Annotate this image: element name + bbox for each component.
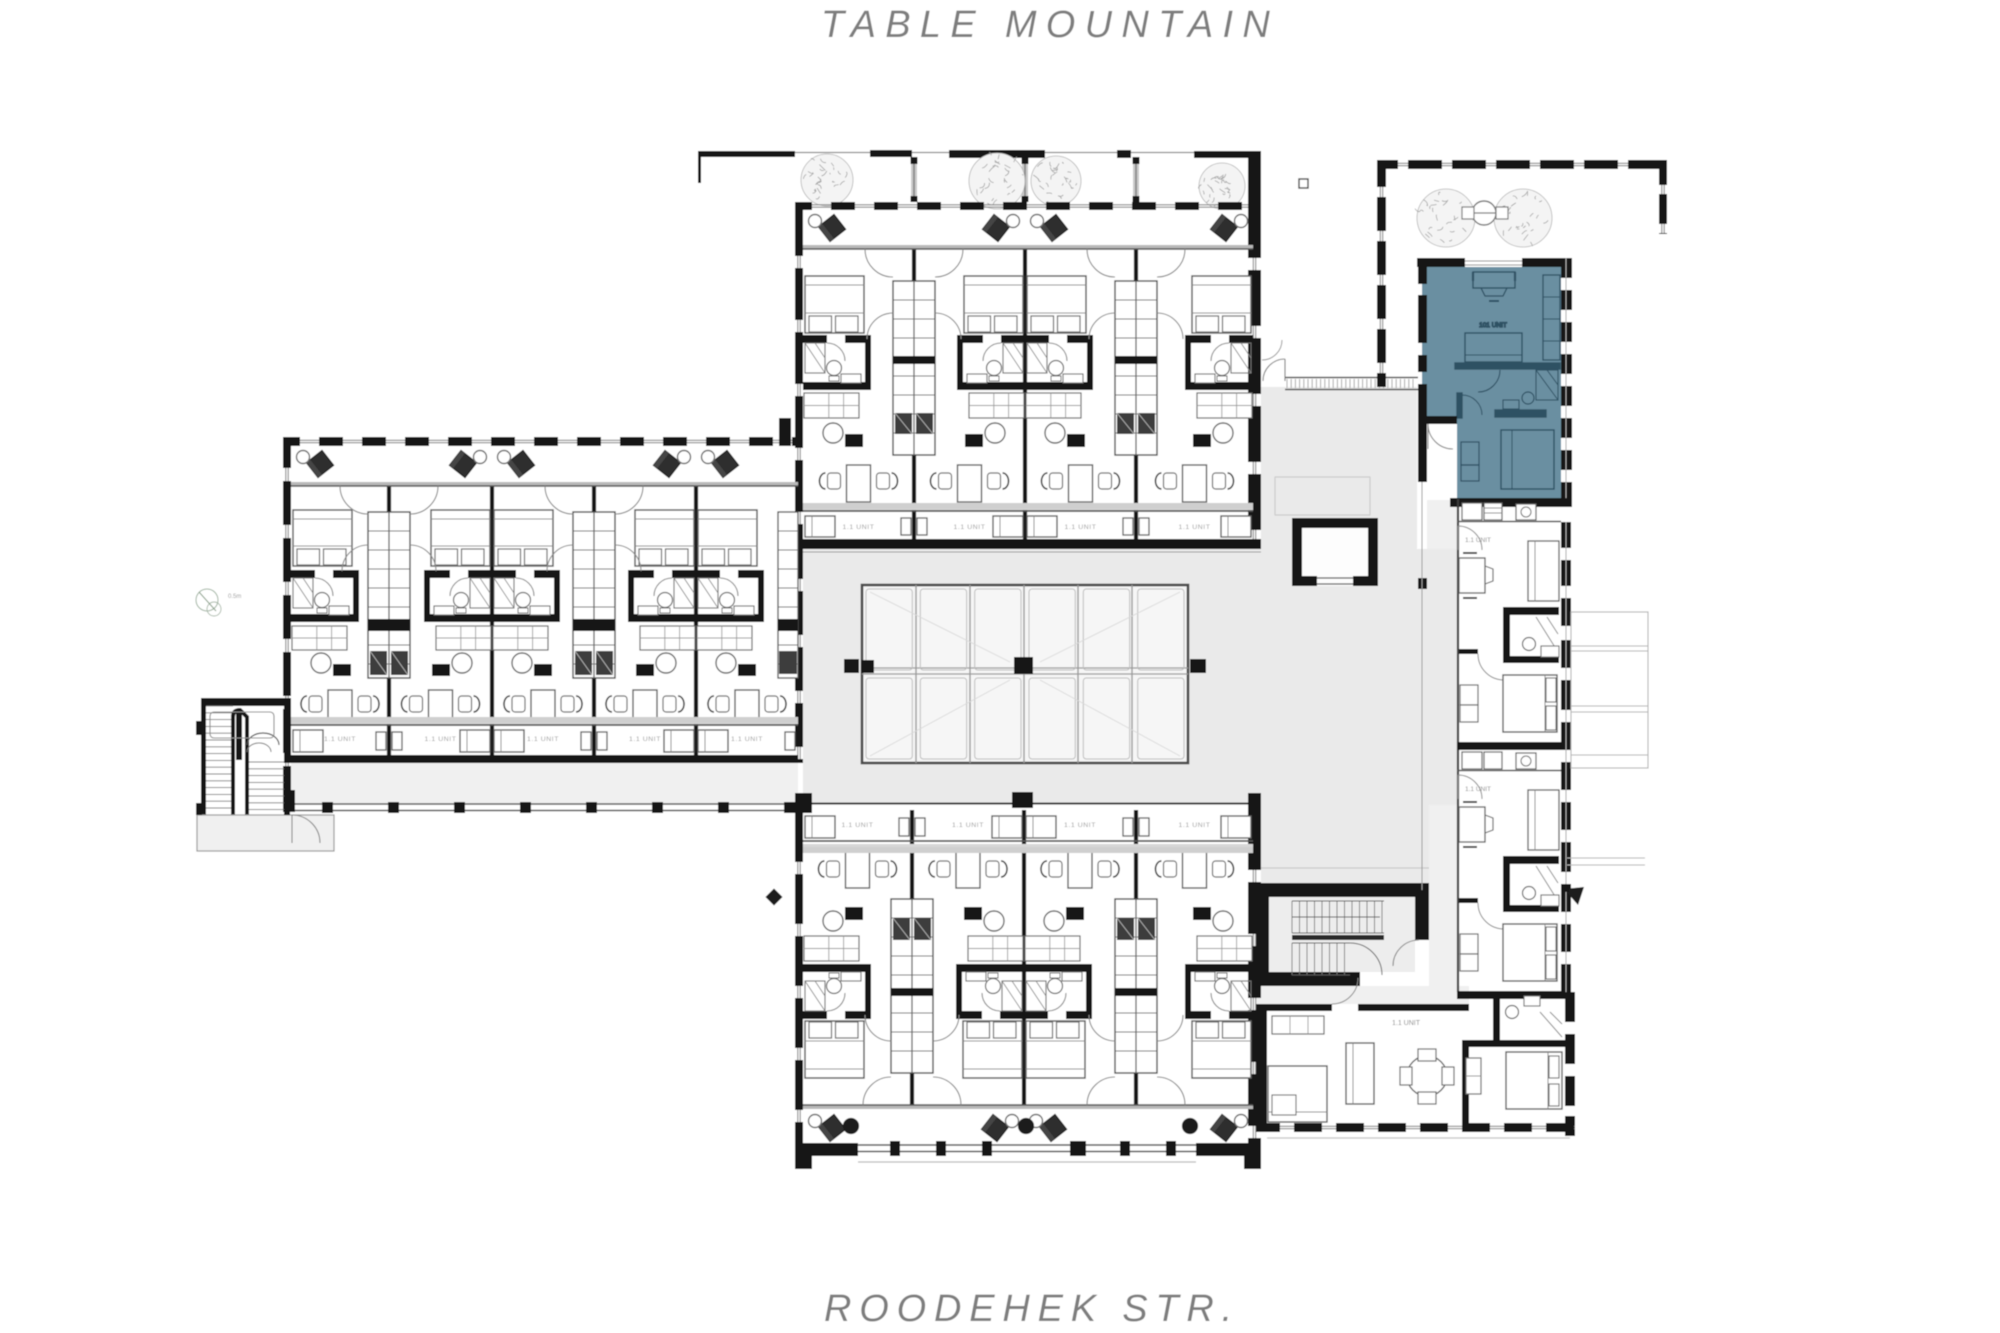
svg-text:1.1 UNIT: 1.1 UNIT xyxy=(731,736,763,743)
svg-text:1.1 UNIT: 1.1 UNIT xyxy=(1179,822,1211,829)
svg-text:1.1 UNIT: 1.1 UNIT xyxy=(324,736,356,743)
svg-text:1.1 UNIT: 1.1 UNIT xyxy=(1179,524,1211,531)
svg-text:1.1 UNIT: 1.1 UNIT xyxy=(1465,786,1491,793)
svg-text:1.1 UNIT: 1.1 UNIT xyxy=(843,524,875,531)
svg-text:0.5m: 0.5m xyxy=(228,594,241,600)
svg-text:ROODEHEK STR.: ROODEHEK STR. xyxy=(824,1288,1240,1330)
svg-text:1.1 UNIT: 1.1 UNIT xyxy=(952,822,984,829)
svg-text:1.1 UNIT: 1.1 UNIT xyxy=(1064,822,1096,829)
svg-text:1.1 UNIT: 1.1 UNIT xyxy=(842,822,874,829)
svg-text:1.1 UNIT: 1.1 UNIT xyxy=(629,736,661,743)
svg-text:1.1 UNIT: 1.1 UNIT xyxy=(1392,1020,1421,1027)
svg-text:1.1 UNIT: 1.1 UNIT xyxy=(527,736,559,743)
svg-text:1.1 UNIT: 1.1 UNIT xyxy=(1065,524,1097,531)
svg-text:1.1 UNIT: 1.1 UNIT xyxy=(1465,537,1491,544)
svg-text:1.1 UNIT: 1.1 UNIT xyxy=(425,736,457,743)
svg-text:TABLE MOUNTAIN: TABLE MOUNTAIN xyxy=(821,4,1279,46)
svg-text:101 UNIT: 101 UNIT xyxy=(1479,322,1507,329)
svg-text:1.1 UNIT: 1.1 UNIT xyxy=(954,524,986,531)
